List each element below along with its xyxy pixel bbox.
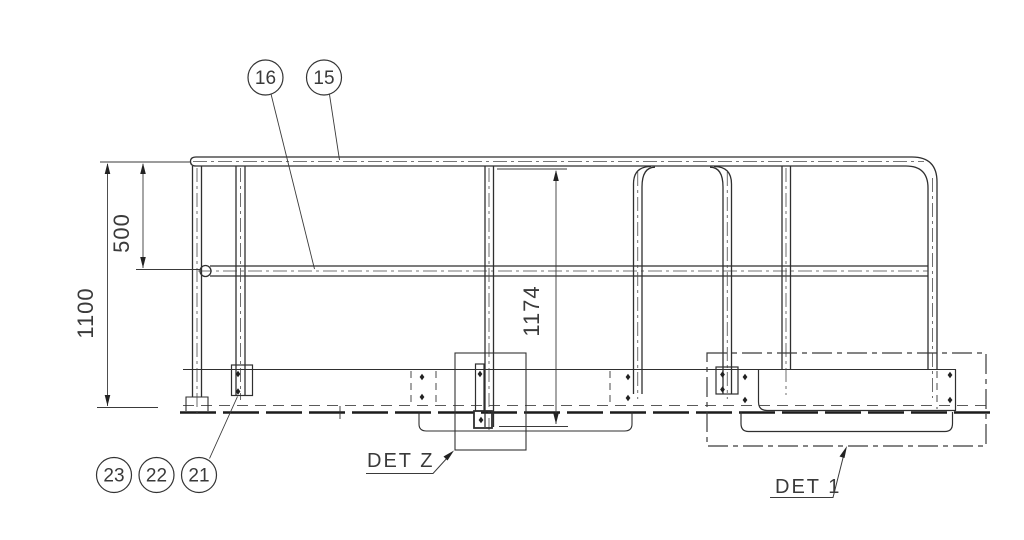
railing-elevation-drawing: 1100 500 1174 DET Z DET 1 16 — [0, 0, 1024, 540]
right-mounting-plates — [741, 370, 956, 432]
post-left-end — [186, 166, 208, 418]
balloon-23-number: 23 — [103, 466, 124, 487]
balloon-23: 23 — [97, 458, 132, 493]
det-1-leader-arrow — [840, 446, 848, 458]
mid-rail — [198, 266, 928, 277]
top-rail — [191, 157, 938, 398]
det-1-text: DET 1 — [775, 476, 841, 498]
balloon-15-number: 15 — [313, 68, 334, 89]
balloon-22: 22 — [139, 458, 174, 493]
technical-drawing-canvas: 1100 500 1174 DET Z DET 1 16 — [0, 0, 1024, 540]
balloon-15: 15 — [307, 60, 342, 95]
dimension-1174-value: 1174 — [519, 285, 544, 336]
post-4 — [782, 166, 791, 395]
balloon-16-number: 16 — [255, 68, 276, 89]
dimension-500-value: 500 — [109, 213, 134, 253]
deck-band — [180, 370, 992, 432]
balloon-22-number: 22 — [146, 466, 167, 487]
posts — [186, 166, 791, 430]
balloon-21-number: 21 — [188, 466, 209, 487]
dimension-1100-value: 1100 — [73, 287, 98, 338]
det-z-boundary-box — [455, 353, 526, 450]
det-z-text: DET Z — [367, 450, 434, 472]
det-1-label: DET 1 — [770, 446, 847, 498]
det-z-leader-arrow — [444, 451, 455, 461]
dimension-500 — [136, 163, 201, 270]
balloon-21: 21 — [182, 458, 217, 493]
dimension-1100 — [97, 162, 190, 408]
plate-post-middle — [476, 364, 485, 411]
u-frame — [634, 167, 732, 400]
det-z-label: DET Z — [366, 450, 454, 474]
balloon-16: 16 — [248, 60, 283, 95]
bolt-symbols — [236, 371, 953, 423]
post-middle — [485, 166, 494, 430]
upper-plate — [759, 370, 956, 411]
lower-plate — [741, 412, 953, 432]
